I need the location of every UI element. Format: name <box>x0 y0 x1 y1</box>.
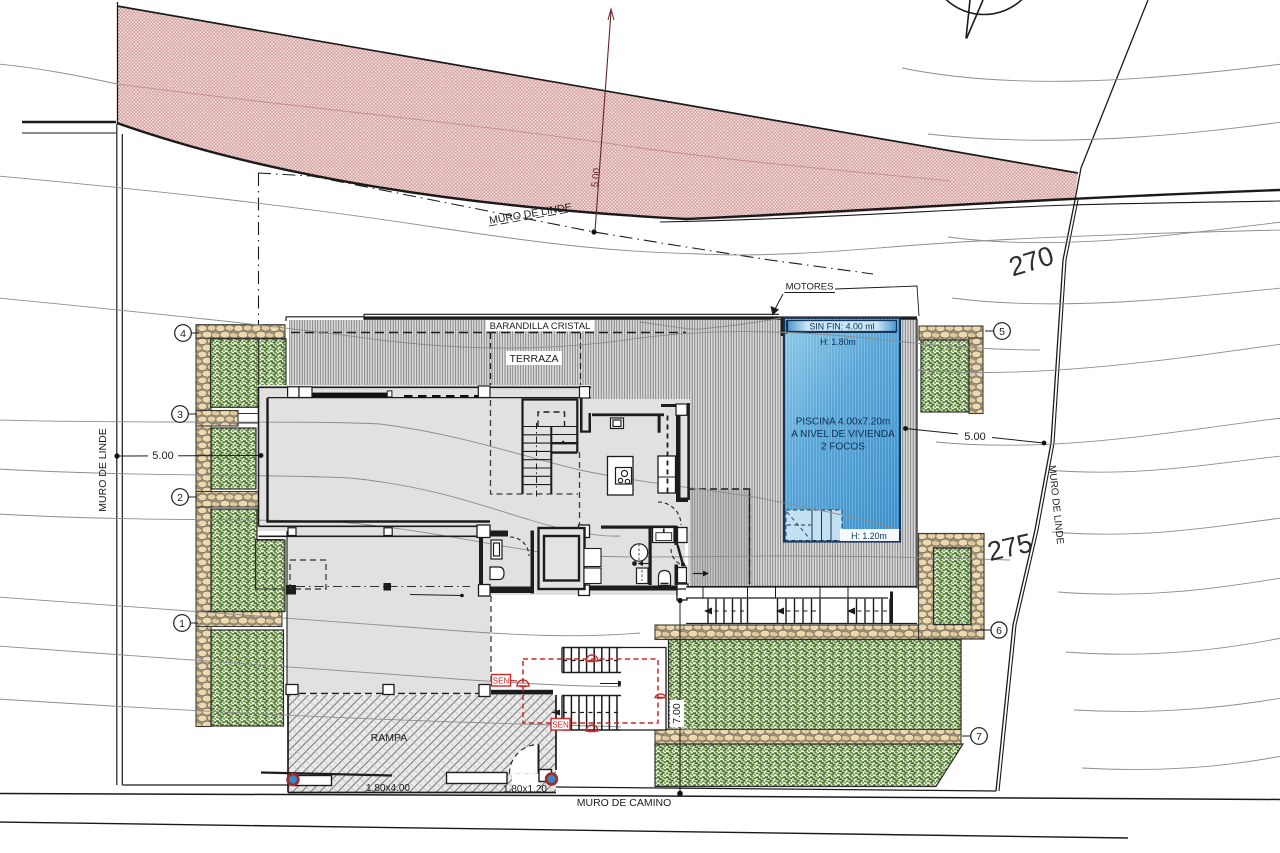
svg-text:SEN: SEN <box>493 677 510 686</box>
svg-text:5.00: 5.00 <box>152 450 173 462</box>
svg-text:4: 4 <box>180 328 186 340</box>
svg-text:1.80x1.20: 1.80x1.20 <box>503 784 547 795</box>
svg-text:3: 3 <box>177 409 183 421</box>
svg-text:1.80x4.00: 1.80x4.00 <box>366 783 410 794</box>
svg-text:A NIVEL DE VIVIENDA: A NIVEL DE VIVIENDA <box>791 429 895 440</box>
svg-text:H: 1.80m: H: 1.80m <box>820 337 856 347</box>
svg-text:5.00: 5.00 <box>964 431 985 443</box>
svg-text:MURO DE LINDE: MURO DE LINDE <box>97 428 109 511</box>
svg-text:SIN FIN: 4.00 ml: SIN FIN: 4.00 ml <box>809 322 874 332</box>
svg-text:BARANDILLA CRISTAL: BARANDILLA CRISTAL <box>490 321 591 332</box>
svg-text:6: 6 <box>996 625 1002 637</box>
svg-text:2: 2 <box>177 492 183 504</box>
svg-text:7: 7 <box>976 731 982 743</box>
svg-text:PISCINA 4.00x7.20m: PISCINA 4.00x7.20m <box>796 417 891 428</box>
svg-text:MURO DE CAMINO: MURO DE CAMINO <box>577 797 672 809</box>
svg-text:1: 1 <box>179 618 185 630</box>
svg-text:SEN: SEN <box>552 721 569 730</box>
svg-text:TERRAZA: TERRAZA <box>509 353 558 365</box>
svg-text:7.00: 7.00 <box>671 703 683 724</box>
svg-text:2 FOCOS: 2 FOCOS <box>821 442 865 453</box>
svg-text:MOTORES: MOTORES <box>786 282 834 293</box>
svg-text:RAMPA: RAMPA <box>371 732 408 744</box>
svg-text:5: 5 <box>999 326 1005 338</box>
svg-text:H: 1.20m: H: 1.20m <box>851 531 887 541</box>
